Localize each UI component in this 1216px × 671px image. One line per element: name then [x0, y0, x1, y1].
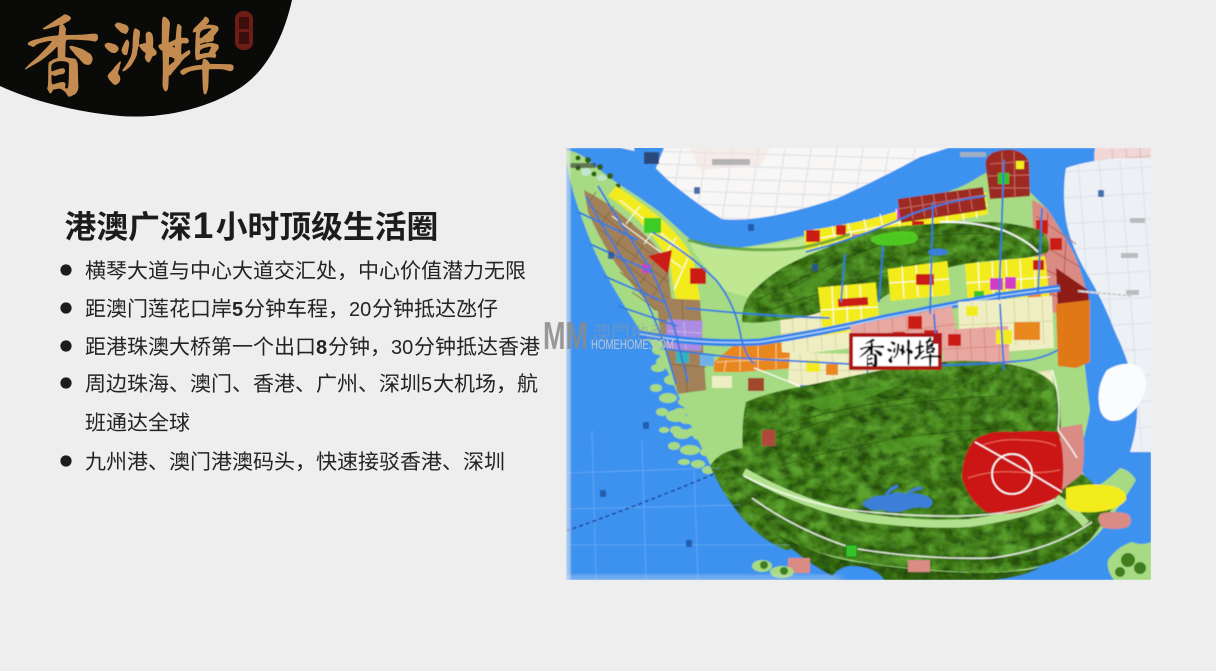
svg-text:HOMEHOME.COM: HOMEHOME.COM: [591, 337, 674, 352]
svg-text:5: 5: [232, 299, 243, 321]
svg-text:5: 5: [421, 374, 432, 396]
svg-text:30: 30: [391, 337, 413, 359]
svg-text:20: 20: [349, 299, 371, 321]
svg-text:1: 1: [193, 205, 214, 246]
svg-text:MM: MM: [543, 315, 588, 358]
svg-text:8: 8: [316, 337, 327, 359]
